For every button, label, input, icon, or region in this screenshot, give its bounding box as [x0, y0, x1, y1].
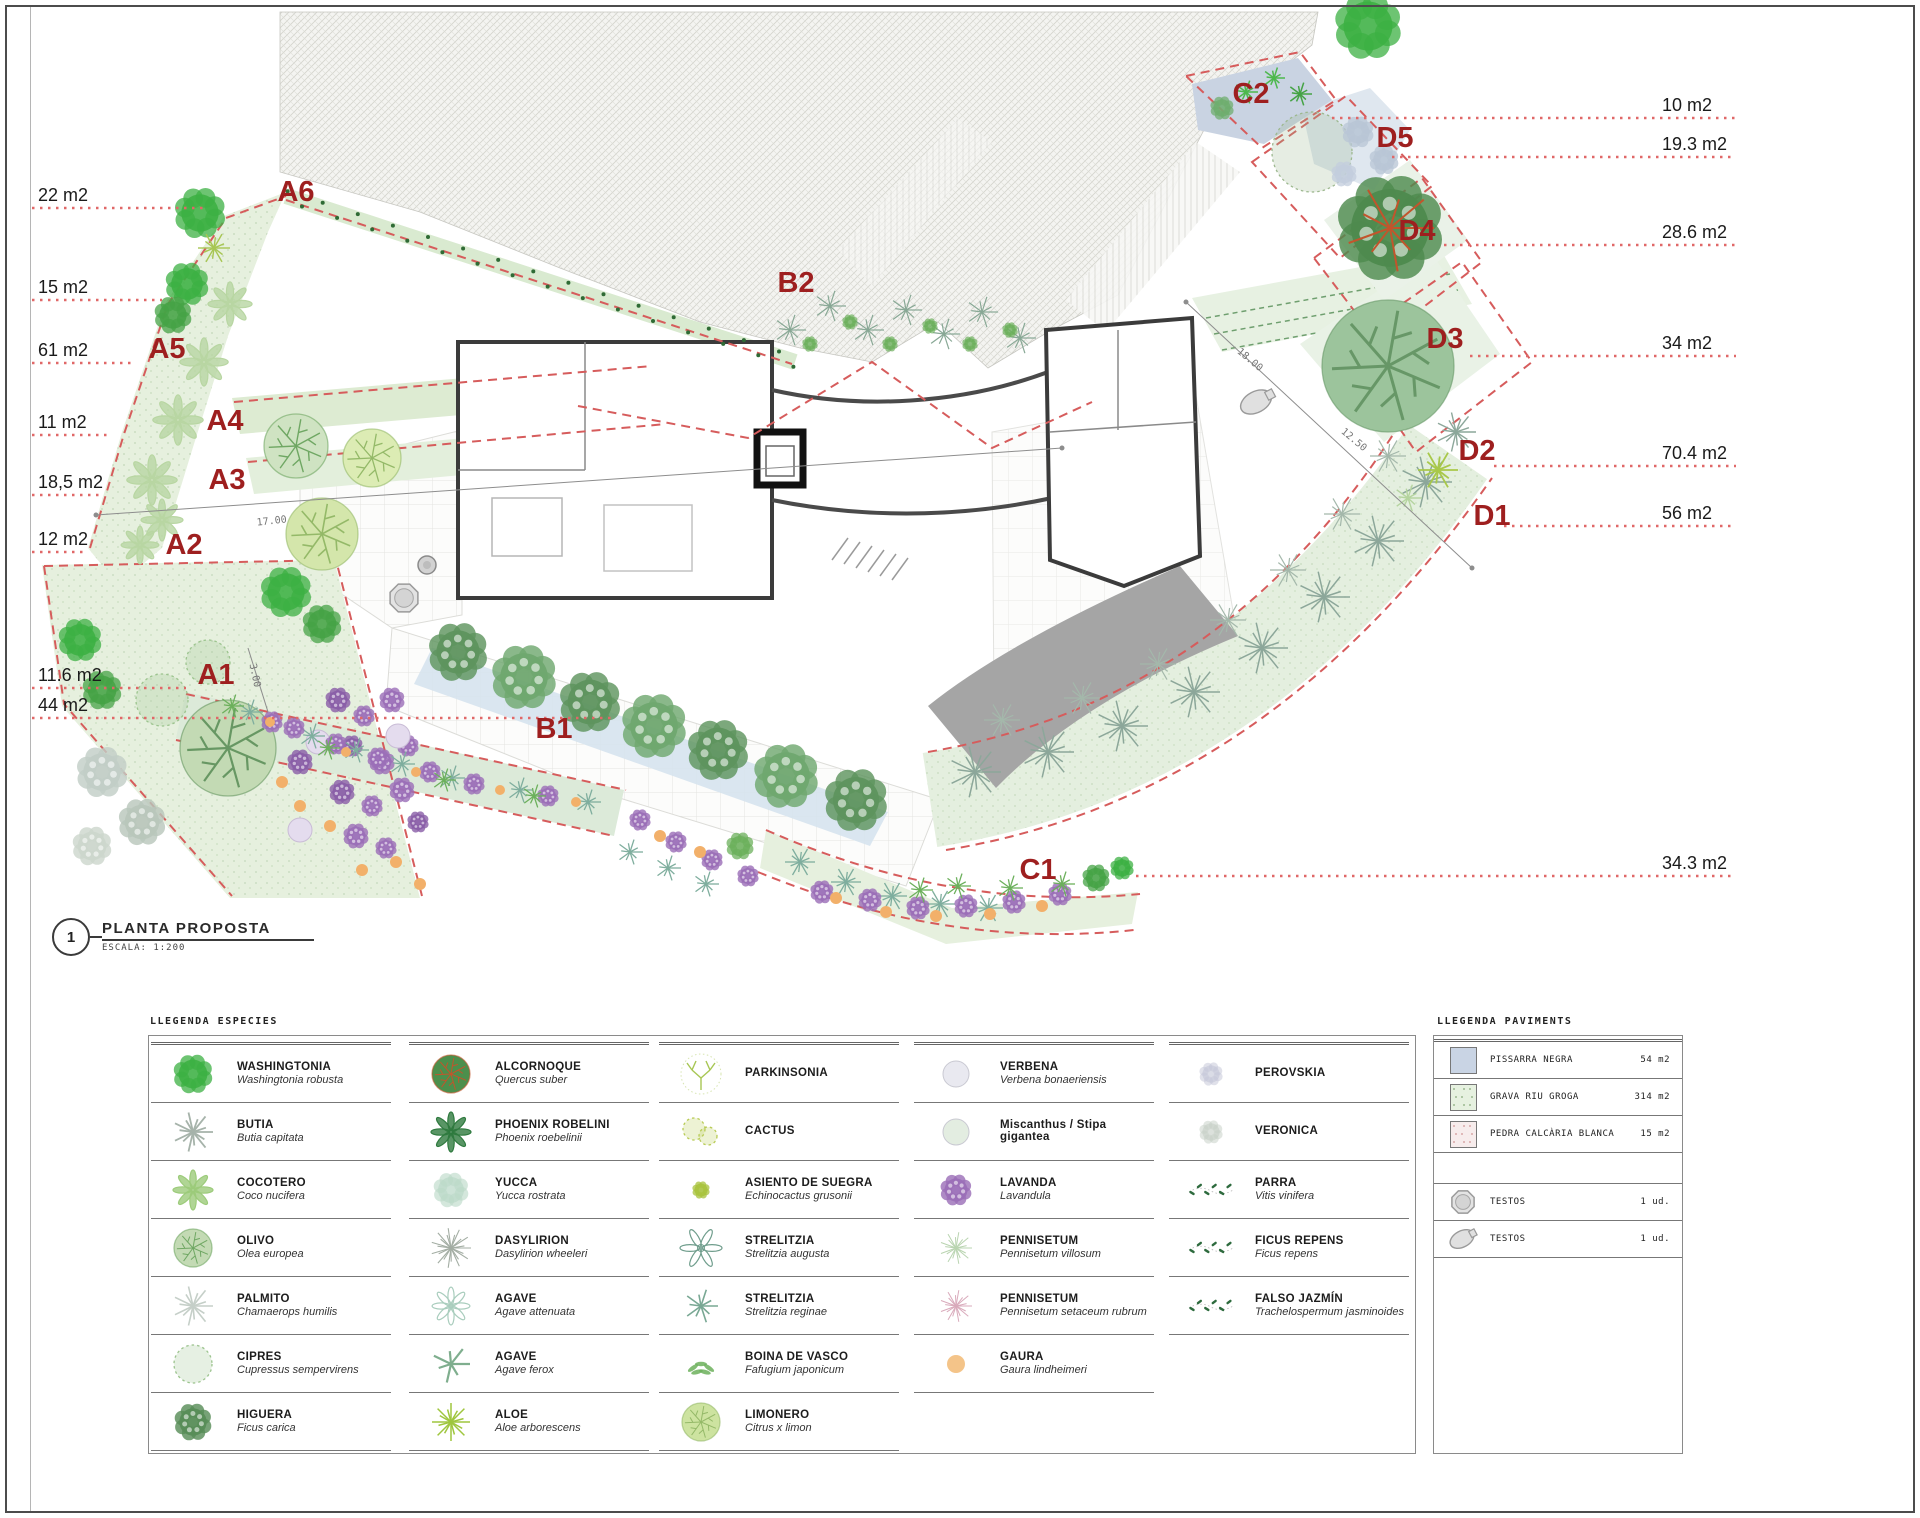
- species-row: LAVANDALavandula: [914, 1161, 1154, 1219]
- species-name: OLIVO: [237, 1235, 304, 1247]
- drawing-number-badge: 1: [52, 918, 90, 956]
- species-name: PARRA: [1255, 1177, 1314, 1189]
- species-row: PENNISETUMPennisetum setaceum rubrum: [914, 1277, 1154, 1335]
- species-row: PARRAVitis vinifera: [1169, 1161, 1409, 1219]
- zone-label-c2: C2: [1232, 78, 1269, 110]
- species-row: LIMONEROCitrus x limon: [659, 1393, 899, 1451]
- zone-label-a6: A6: [277, 176, 314, 208]
- mottled-tree-icon: [161, 1395, 225, 1449]
- species-row: AGAVEAgave ferox: [409, 1335, 649, 1393]
- zone-label-a3: A3: [208, 464, 245, 496]
- surface-rows: PISSARRA NEGRA54 m2GRAVA RIU GROGA314 m2…: [1434, 1039, 1682, 1153]
- surface-row: PEDRA CALCÀRIA BLANCA15 m2: [1434, 1116, 1682, 1153]
- species-name: CIPRES: [237, 1351, 359, 1363]
- zone-label-d4: D4: [1398, 215, 1435, 247]
- species-name: ALCORNOQUE: [495, 1061, 581, 1073]
- vine-icon: [1179, 1163, 1243, 1217]
- species-name: VERBENA: [1000, 1061, 1107, 1073]
- species-latin: Agave attenuata: [495, 1306, 575, 1318]
- species-row: GAURAGaura lindheimeri: [914, 1335, 1154, 1393]
- zone-label-b2: B2: [777, 267, 814, 299]
- species-name: WASHINGTONIA: [237, 1061, 343, 1073]
- palm-star-icon: [161, 1105, 225, 1159]
- site-plan: 22 m215 m261 m211 m218,5 m212 m211.6 m24…: [0, 0, 1920, 1000]
- species-name: AGAVE: [495, 1293, 575, 1305]
- species-row: VERBENAVerbena bonaeriensis: [914, 1045, 1154, 1103]
- area-label: 11.6 m2: [38, 665, 102, 685]
- fine-star-icon: [924, 1279, 988, 1333]
- snowflake-palm-icon: [161, 1279, 225, 1333]
- area-label: 34 m2: [1662, 333, 1712, 353]
- species-row: Miscanthus / Stipa gigantea: [914, 1103, 1154, 1161]
- species-name: BUTIA: [237, 1119, 304, 1131]
- strelitzia-plant-icon: [669, 1221, 733, 1275]
- stone-pink-swatch-icon: [1446, 1121, 1480, 1148]
- species-latin: Vitis vinifera: [1255, 1190, 1314, 1202]
- species-row: CACTUS: [659, 1103, 899, 1161]
- strelitzia-star-icon: [669, 1279, 733, 1333]
- vine-icon: [1179, 1221, 1243, 1275]
- dimension-label: 12.50: [1339, 426, 1369, 454]
- title-underline: [102, 939, 314, 941]
- species-latin: Dasylirion wheeleri: [495, 1248, 587, 1260]
- sketch-blob-icon: [1179, 1105, 1243, 1159]
- slate-swatch-icon: [1446, 1047, 1480, 1074]
- species-latin: Ficus repens: [1255, 1248, 1344, 1260]
- species-name: GAURA: [1000, 1351, 1087, 1363]
- sketch-blob-icon: [1179, 1047, 1243, 1101]
- species-name: CACTUS: [745, 1125, 795, 1137]
- species-row: HIGUERAFicus carica: [151, 1393, 391, 1451]
- dotted-tree-icon: [161, 1337, 225, 1391]
- area-label: 28.6 m2: [1662, 222, 1727, 242]
- starburst-icon: [419, 1221, 483, 1275]
- species-latin: Pennisetum villosum: [1000, 1248, 1101, 1260]
- palm-fronds-icon: [161, 1163, 225, 1217]
- species-name: ASIENTO DE SUEGRA: [745, 1177, 873, 1189]
- species-latin: Cupressus sempervirens: [237, 1364, 359, 1376]
- area-label: 44 m2: [38, 695, 88, 715]
- species-name: FALSO JAZMÍN: [1255, 1293, 1404, 1305]
- pot-octagon-icon: [1446, 1187, 1480, 1217]
- species-column: VERBENAVerbena bonaeriensisMiscanthus / …: [914, 1042, 1154, 1393]
- species-row: PHOENIX ROBELINIPhoenix roebelinii: [409, 1103, 649, 1161]
- scale-label: ESCALA: 1:200: [102, 943, 314, 953]
- olive-tree-icon: [161, 1221, 225, 1275]
- surface-name: PISSARRA NEGRA: [1490, 1055, 1630, 1065]
- species-name: STRELITZIA: [745, 1293, 827, 1305]
- surface-name: PEDRA CALCÀRIA BLANCA: [1490, 1129, 1630, 1139]
- species-row: CIPRESCupressus sempervirens: [151, 1335, 391, 1393]
- species-name: HIGUERA: [237, 1409, 296, 1421]
- pot-qty: 1 ud.: [1640, 1197, 1670, 1207]
- species-latin: Citrus x limon: [745, 1422, 812, 1434]
- pot-name: TESTOS: [1490, 1234, 1630, 1244]
- species-row: ALOEAloe arborescens: [409, 1393, 649, 1451]
- surface-area: 54 m2: [1640, 1055, 1670, 1065]
- area-label: 61 m2: [38, 340, 88, 360]
- species-row: PEROVSKIA: [1169, 1045, 1409, 1103]
- species-latin: Lavandula: [1000, 1190, 1057, 1202]
- area-label: 19.3 m2: [1662, 134, 1727, 154]
- species-latin: Butia capitata: [237, 1132, 304, 1144]
- parkinsonia-branches-icon: [669, 1047, 733, 1101]
- sprig-icon: [669, 1337, 733, 1391]
- paviments-legend: PISSARRA NEGRA54 m2GRAVA RIU GROGA314 m2…: [1433, 1035, 1683, 1454]
- title-block: 1 PLANTA PROPOSTA ESCALA: 1:200: [52, 918, 314, 956]
- zone-label-b1: B1: [535, 713, 572, 745]
- species-latin: Phoenix roebelinii: [495, 1132, 610, 1144]
- pale-circle-icon: [924, 1105, 988, 1159]
- palm-fronds-icon: [419, 1105, 483, 1159]
- species-name: PENNISETUM: [1000, 1293, 1147, 1305]
- species-name: VERONICA: [1255, 1125, 1318, 1137]
- species-row: STRELITZIAStrelitzia reginae: [659, 1277, 899, 1335]
- species-name: PARKINSONIA: [745, 1067, 828, 1079]
- species-name: PEROVSKIA: [1255, 1067, 1325, 1079]
- zone-label-c1: C1: [1019, 854, 1056, 886]
- species-legend-title: LLEGENDA ESPECIES: [150, 1016, 278, 1027]
- aloe-star-icon: [419, 1395, 483, 1449]
- species-column: ALCORNOQUEQuercus suberPHOENIX ROBELINIP…: [409, 1042, 649, 1451]
- species-row: PALMITOChamaerops humilis: [151, 1277, 391, 1335]
- species-row: ASIENTO DE SUEGRAEchinocactus grusonii: [659, 1161, 899, 1219]
- cork-tree-icon: [419, 1047, 483, 1101]
- small-blob-icon: [669, 1163, 733, 1217]
- orange-dot-icon: [924, 1337, 988, 1391]
- area-label: 12 m2: [38, 529, 88, 549]
- cactus-pair-icon: [669, 1105, 733, 1159]
- pot-name: TESTOS: [1490, 1197, 1630, 1207]
- species-latin: Fafugium japonicum: [745, 1364, 848, 1376]
- agave-blades-icon: [419, 1337, 483, 1391]
- lavender-mottle-icon: [924, 1163, 988, 1217]
- species-row: AGAVEAgave attenuata: [409, 1277, 649, 1335]
- area-label: 11 m2: [38, 412, 87, 432]
- species-row: DASYLIRIONDasylirion wheeleri: [409, 1219, 649, 1277]
- species-column: PARKINSONIACACTUSASIENTO DE SUEGRAEchino…: [659, 1042, 899, 1451]
- zone-label-d2: D2: [1458, 435, 1495, 467]
- species-latin: Verbena bonaeriensis: [1000, 1074, 1107, 1086]
- species-row: ALCORNOQUEQuercus suber: [409, 1045, 649, 1103]
- pot-qty: 1 ud.: [1640, 1234, 1670, 1244]
- area-label: 56 m2: [1662, 503, 1712, 523]
- surface-row: PISSARRA NEGRA54 m2: [1434, 1042, 1682, 1079]
- zone-label-a5: A5: [148, 333, 185, 365]
- gravel-green-swatch-icon: [1446, 1084, 1480, 1111]
- species-latin: Echinocactus grusonii: [745, 1190, 873, 1202]
- pale-circle-icon: [924, 1047, 988, 1101]
- species-row: FICUS REPENSFicus repens: [1169, 1219, 1409, 1277]
- species-latin: Trachelospermum jasminoides: [1255, 1306, 1404, 1318]
- species-name: AGAVE: [495, 1351, 554, 1363]
- species-latin: Olea europea: [237, 1248, 304, 1260]
- dimension-label: 18.00: [1235, 346, 1265, 374]
- species-name: PENNISETUM: [1000, 1235, 1101, 1247]
- pot-row: TESTOS1 ud.: [1434, 1221, 1682, 1258]
- species-name: PHOENIX ROBELINI: [495, 1119, 610, 1131]
- zone-label-a1: A1: [197, 659, 234, 691]
- zone-label-d1: D1: [1473, 500, 1510, 532]
- pot-row: TESTOS1 ud.: [1434, 1184, 1682, 1221]
- area-label: 15 m2: [38, 277, 88, 297]
- species-row: COCOTEROCoco nucifera: [151, 1161, 391, 1219]
- species-name: YUCCA: [495, 1177, 566, 1189]
- species-row: YUCCAYucca rostrata: [409, 1161, 649, 1219]
- pot-amphora-icon: [1446, 1224, 1480, 1254]
- pot-amphora-icon: [1237, 383, 1279, 418]
- species-latin: Coco nucifera: [237, 1190, 306, 1202]
- dimension-label: 17.00: [256, 514, 287, 528]
- species-column: PEROVSKIAVERONICAPARRAVitis viniferaFICU…: [1169, 1042, 1409, 1335]
- species-name: BOINA DE VASCO: [745, 1351, 848, 1363]
- species-latin: Strelitzia augusta: [745, 1248, 829, 1260]
- species-row: WASHINGTONIAWashingtonia robusta: [151, 1045, 391, 1103]
- zone-label-a4: A4: [206, 405, 243, 437]
- area-label: 22 m2: [38, 185, 88, 205]
- species-latin: Agave ferox: [495, 1364, 554, 1376]
- species-latin: Aloe arborescens: [495, 1422, 581, 1434]
- species-latin: Quercus suber: [495, 1074, 581, 1086]
- species-row: BUTIAButia capitata: [151, 1103, 391, 1161]
- area-label: 34.3 m2: [1662, 853, 1727, 873]
- species-name: LIMONERO: [745, 1409, 812, 1421]
- agave-rosette-icon: [419, 1279, 483, 1333]
- species-column: WASHINGTONIAWashingtonia robustaBUTIABut…: [151, 1042, 391, 1451]
- species-latin: Ficus carica: [237, 1422, 296, 1434]
- species-legend: WASHINGTONIAWashingtonia robustaBUTIABut…: [148, 1035, 1416, 1454]
- fine-star-icon: [924, 1221, 988, 1275]
- surface-name: GRAVA RIU GROGA: [1490, 1092, 1624, 1102]
- pompom-icon: [419, 1163, 483, 1217]
- species-name: DASYLIRION: [495, 1235, 587, 1247]
- blob-tree-icon: [161, 1047, 225, 1101]
- species-latin: Strelitzia reginae: [745, 1306, 827, 1318]
- species-name: PALMITO: [237, 1293, 337, 1305]
- species-latin: Washingtonia robusta: [237, 1074, 343, 1086]
- species-row: BOINA DE VASCOFafugium japonicum: [659, 1335, 899, 1393]
- zone-label-d3: D3: [1426, 323, 1463, 355]
- species-name: STRELITZIA: [745, 1235, 829, 1247]
- species-row: STRELITZIAStrelitzia augusta: [659, 1219, 899, 1277]
- species-name: COCOTERO: [237, 1177, 306, 1189]
- area-label: 18,5 m2: [38, 472, 103, 492]
- paviments-legend-title: LLEGENDA PAVIMENTS: [1437, 1016, 1572, 1027]
- vine-icon: [1179, 1279, 1243, 1333]
- species-name: Miscanthus / Stipa gigantea: [1000, 1119, 1154, 1143]
- species-latin: Gaura lindheimeri: [1000, 1364, 1087, 1376]
- species-latin: Pennisetum setaceum rubrum: [1000, 1306, 1147, 1318]
- surface-area: 15 m2: [1640, 1129, 1670, 1139]
- species-latin: Yucca rostrata: [495, 1190, 566, 1202]
- pot-rows: TESTOS1 ud.TESTOS1 ud.: [1434, 1183, 1682, 1258]
- species-row: PENNISETUMPennisetum villosum: [914, 1219, 1154, 1277]
- species-name: FICUS REPENS: [1255, 1235, 1344, 1247]
- species-row: OLIVOOlea europea: [151, 1219, 391, 1277]
- zone-label-a2: A2: [165, 529, 202, 561]
- species-name: LAVANDA: [1000, 1177, 1057, 1189]
- species-latin: Chamaerops humilis: [237, 1306, 337, 1318]
- species-row: PARKINSONIA: [659, 1045, 899, 1103]
- pot-octagon-icon: [390, 584, 418, 612]
- species-row: VERONICA: [1169, 1103, 1409, 1161]
- citrus-tree-icon: [669, 1395, 733, 1449]
- building-footprint: [458, 318, 1200, 598]
- title-block-connector: [90, 936, 102, 938]
- drawing-sheet: 22 m215 m261 m211 m218,5 m212 m211.6 m24…: [0, 0, 1920, 1518]
- surface-area: 314 m2: [1634, 1092, 1670, 1102]
- species-row: FALSO JAZMÍNTrachelospermum jasminoides: [1169, 1277, 1409, 1335]
- area-label: 70.4 m2: [1662, 443, 1727, 463]
- surface-row: GRAVA RIU GROGA314 m2: [1434, 1079, 1682, 1116]
- zone-label-d5: D5: [1376, 122, 1413, 154]
- page-title: PLANTA PROPOSTA: [102, 920, 314, 937]
- species-name: ALOE: [495, 1409, 581, 1421]
- area-label: 10 m2: [1662, 95, 1712, 115]
